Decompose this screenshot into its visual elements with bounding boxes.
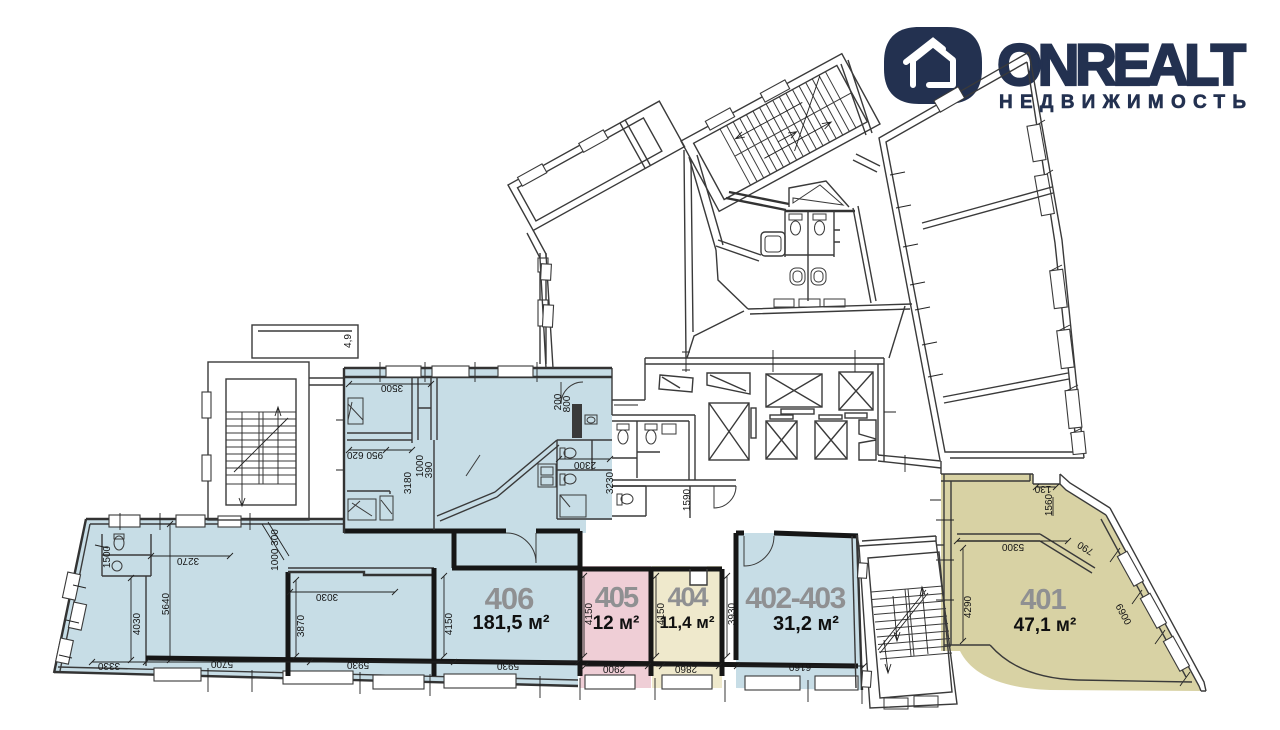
- svg-text:5700: 5700: [210, 658, 233, 669]
- svg-text:2300: 2300: [573, 459, 596, 470]
- svg-text:401: 401: [1020, 584, 1066, 616]
- svg-text:12 м²: 12 м²: [593, 613, 640, 634]
- svg-text:3270: 3270: [176, 555, 199, 566]
- svg-text:4030: 4030: [132, 612, 143, 635]
- svg-text:4150: 4150: [656, 602, 667, 625]
- svg-text:3230: 3230: [605, 471, 616, 494]
- svg-text:4150: 4150: [584, 602, 595, 625]
- svg-text:1590: 1590: [682, 488, 693, 511]
- svg-text:31,2 м²: 31,2 м²: [773, 613, 839, 635]
- svg-text:130: 130: [1034, 483, 1051, 494]
- svg-text:5930: 5930: [496, 660, 519, 671]
- svg-text:3930: 3930: [727, 602, 738, 625]
- svg-text:4,9: 4,9: [343, 334, 354, 348]
- svg-text:2900: 2900: [602, 663, 625, 674]
- svg-text:402-403: 402-403: [745, 582, 845, 615]
- svg-text:11,4 м²: 11,4 м²: [659, 613, 714, 632]
- svg-text:950 620: 950 620: [346, 449, 383, 460]
- svg-text:2860: 2860: [674, 663, 697, 674]
- svg-text:181,5 м²: 181,5 м²: [472, 612, 549, 634]
- svg-text:4290: 4290: [963, 595, 974, 618]
- svg-text:3330: 3330: [97, 660, 120, 671]
- svg-text:390: 390: [424, 461, 435, 478]
- svg-text:3030: 3030: [315, 591, 338, 602]
- svg-text:6160: 6160: [788, 661, 811, 672]
- svg-text:3180: 3180: [403, 471, 414, 494]
- svg-text:406: 406: [485, 581, 534, 616]
- svg-text:3870: 3870: [296, 614, 307, 637]
- svg-text:1000 300: 1000 300: [270, 529, 281, 571]
- svg-text:405: 405: [595, 582, 639, 614]
- svg-text:800: 800: [562, 395, 573, 412]
- svg-text:5640: 5640: [161, 592, 172, 615]
- svg-text:1500: 1500: [102, 545, 113, 568]
- svg-text:ONREALT: ONREALT: [997, 33, 1246, 98]
- svg-text:404: 404: [667, 582, 708, 612]
- svg-text:5300: 5300: [1001, 541, 1024, 552]
- svg-text:47,1 м²: 47,1 м²: [1014, 615, 1077, 636]
- svg-text:5930: 5930: [346, 659, 369, 670]
- svg-text:4150: 4150: [444, 612, 455, 635]
